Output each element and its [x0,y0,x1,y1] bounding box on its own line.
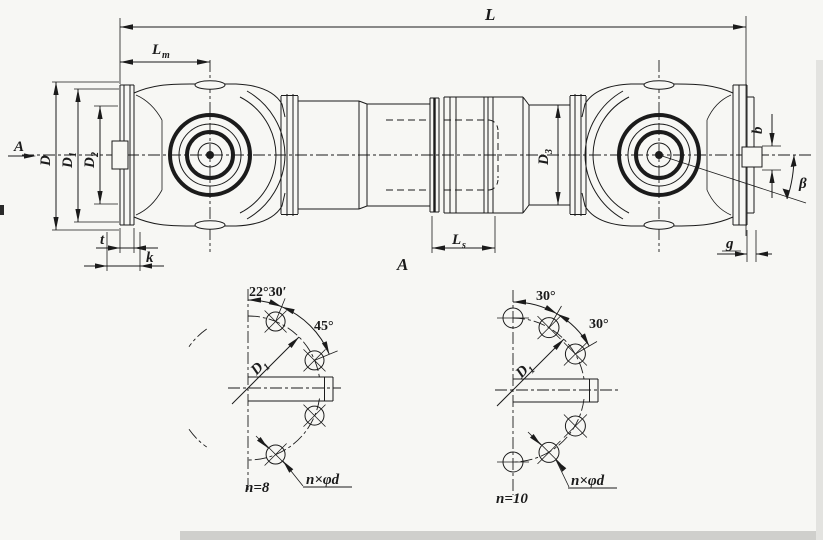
dim-overall-length: L [120,5,746,236]
label-D1: D [60,157,76,169]
n10-hole-count: n=10 [496,491,528,507]
left-bearing-center [206,151,214,159]
label-D2-sub: 2 [90,152,101,158]
n8-shaft-stub [248,377,333,401]
left-yoke-bottom-lug [195,221,225,229]
n8-offset-angle: 22°30′ [249,285,287,300]
scan-artifacts [0,60,823,540]
section-arrow: A [8,139,36,159]
label-section-arrow: A [13,139,24,155]
label-t: t [100,232,105,248]
n10-hole-callout: n×φd [571,473,605,489]
label-g: g [725,236,734,252]
left-yoke-top-lug [195,81,225,89]
dim-spline-length: L s [432,216,495,253]
n10-shaft-stub [513,379,598,402]
cardan-shaft-drawing: L L m A D D1 D2 [0,0,823,540]
label-beta: β [798,176,807,192]
label-D2: D [82,157,98,169]
left-flange-spigot [112,141,128,169]
label-D1-sub: 1 [68,152,79,157]
label-D3: D [536,154,552,166]
right-yoke-bottom-lug [644,221,674,229]
drawing-canvas: L L m A D D1 D2 [0,0,823,540]
n8-hole-callout: n×φd [306,472,340,488]
n10-offset-angle: 30° [536,289,556,304]
label-k: k [146,250,154,266]
centerlines [22,60,812,252]
label-Ls: L [451,232,461,248]
flange-view-n8: 22°30′ 45° D1 n=8 n×φd [189,285,352,496]
flange-view-n10: 30° 30° D1 n=10 n×φd [495,289,620,507]
n8-pitch-angle: 45° [314,319,334,334]
label-L: L [484,5,495,24]
dim-flange-overall-thickness: k [84,232,164,271]
label-section-view: A [396,255,408,274]
right-yoke-top-lug [644,81,674,89]
dim-face-gap: g [717,230,772,262]
label-D3-sub: 3 [544,149,555,155]
label-Ls-sub: s [461,240,466,251]
n8-hole-count: n=8 [245,480,270,496]
label-Lm-sub: m [162,50,170,61]
dim-flange-diameters: D D1 D2 [38,82,119,230]
dim-joint-length: L m [120,42,210,65]
label-b: b [750,126,766,134]
n10-pitch-angle: 30° [589,317,609,332]
label-D: D [38,155,54,167]
label-Lm: L [151,42,161,58]
right-flange-boss [742,147,762,167]
